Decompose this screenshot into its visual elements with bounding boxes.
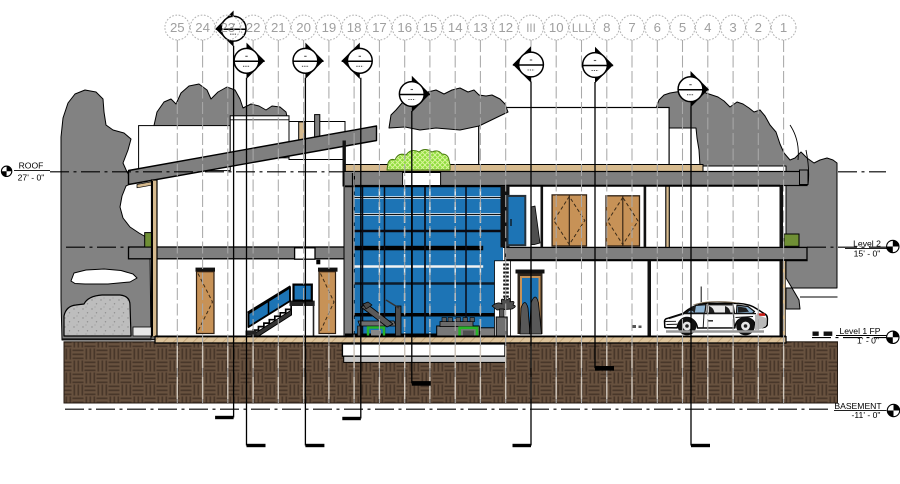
svg-text:21: 21 (271, 20, 286, 35)
svg-text:1: 1 (780, 20, 787, 35)
svg-text:25: 25 (170, 20, 185, 35)
svg-text:15: 15 (423, 20, 438, 35)
svg-text:6: 6 (654, 20, 661, 35)
svg-text:1' - 0": 1' - 0" (857, 335, 879, 345)
svg-text:23: 23 (220, 20, 235, 35)
svg-text:16: 16 (397, 20, 412, 35)
svg-text:2: 2 (755, 20, 762, 35)
svg-text:20: 20 (296, 20, 311, 35)
svg-text:13: 13 (473, 20, 488, 35)
svg-text:5: 5 (679, 20, 686, 35)
svg-text:15' - 0": 15' - 0" (854, 248, 881, 258)
svg-text:7: 7 (628, 20, 635, 35)
svg-text:LLL: LLL (572, 23, 592, 35)
svg-text:10: 10 (549, 20, 564, 35)
svg-text:18: 18 (347, 20, 362, 35)
svg-text:14: 14 (448, 20, 463, 35)
svg-text:8: 8 (603, 20, 610, 35)
svg-text:Level 2: Level 2 (853, 238, 881, 248)
svg-text:-11' - 0": -11' - 0" (852, 410, 881, 420)
svg-text:27' - 0": 27' - 0" (18, 172, 45, 182)
svg-text:22: 22 (246, 20, 261, 35)
svg-text:12: 12 (498, 20, 513, 35)
svg-text:4: 4 (704, 20, 711, 35)
svg-text:19: 19 (322, 20, 337, 35)
svg-text:III: III (526, 23, 536, 35)
svg-text:Level 1 FP: Level 1 FP (839, 326, 880, 336)
svg-text:3: 3 (729, 20, 736, 35)
svg-text:17: 17 (372, 20, 387, 35)
svg-text:24: 24 (195, 20, 210, 35)
svg-text:ROOF: ROOF (19, 160, 44, 170)
